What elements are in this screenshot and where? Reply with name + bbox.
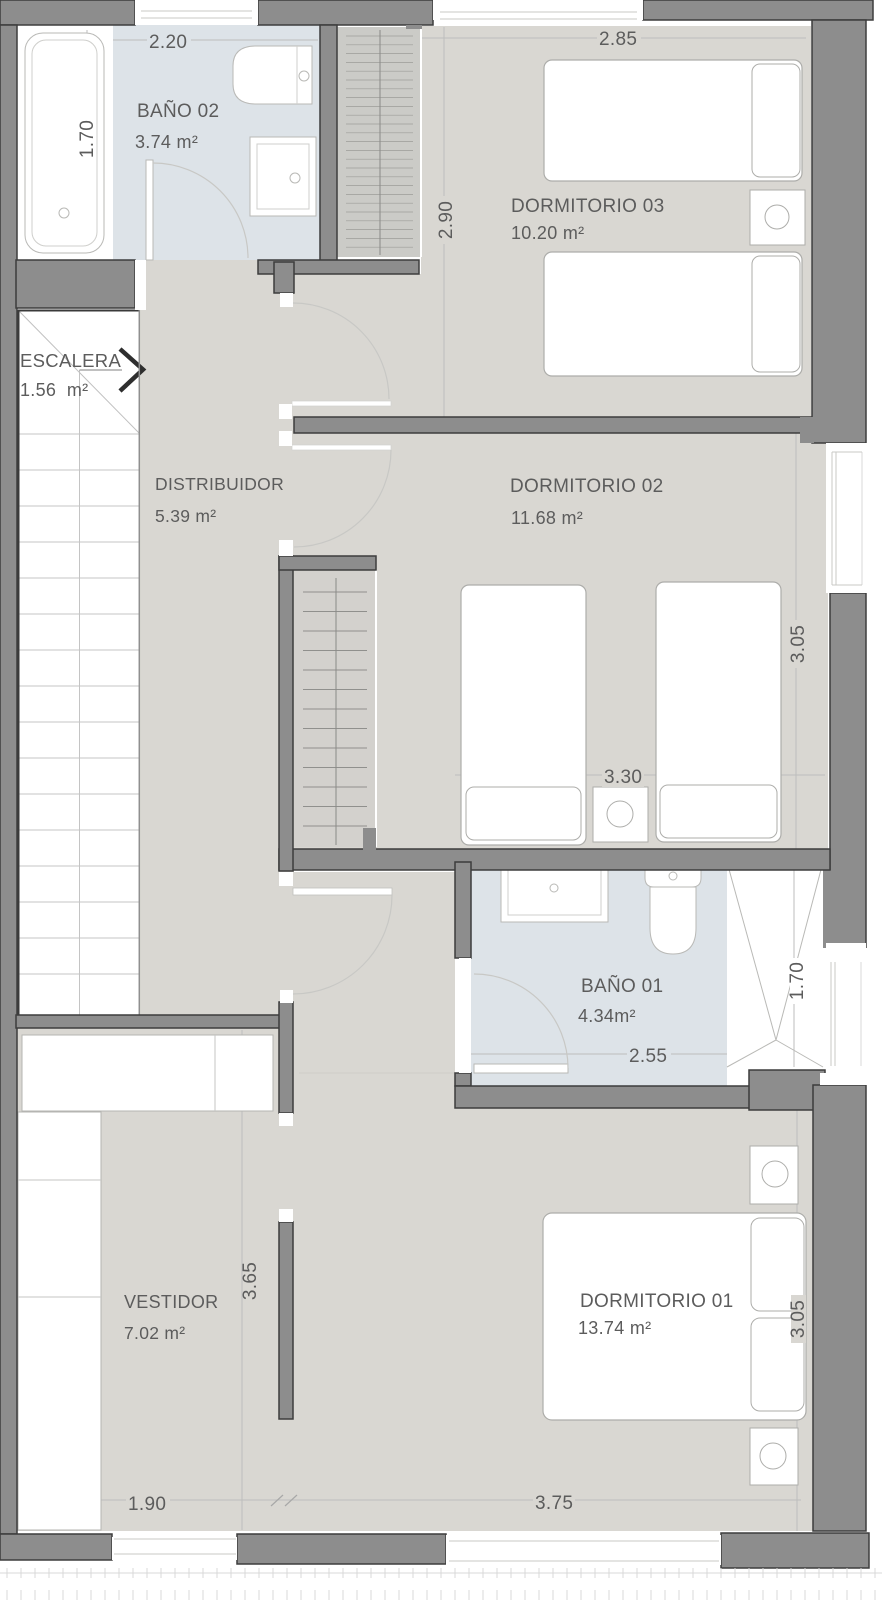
svg-text:1.90: 1.90 — [128, 1494, 166, 1515]
svg-text:3.05: 3.05 — [788, 1300, 809, 1338]
svg-text:1.70: 1.70 — [77, 120, 98, 158]
svg-text:DORMITORIO 02: DORMITORIO 02 — [510, 476, 663, 497]
svg-text:1.70: 1.70 — [787, 962, 808, 1000]
svg-text:10.20 m²: 10.20 m² — [511, 223, 584, 243]
svg-text:VESTIDOR: VESTIDOR — [124, 1292, 218, 1312]
svg-text:2.90: 2.90 — [436, 201, 457, 239]
svg-text:DORMITORIO 03: DORMITORIO 03 — [511, 196, 664, 217]
svg-text:2.55: 2.55 — [629, 1046, 667, 1067]
svg-text:3.65: 3.65 — [240, 1262, 261, 1300]
svg-text:DISTRIBUIDOR: DISTRIBUIDOR — [155, 474, 284, 494]
svg-text:1.56 m²: 1.56 m² — [20, 380, 88, 400]
svg-text:3.74 m²: 3.74 m² — [135, 132, 198, 152]
svg-text:BAÑO 01: BAÑO 01 — [581, 975, 663, 997]
svg-text:13.74 m²: 13.74 m² — [578, 1318, 651, 1338]
svg-text:3.05: 3.05 — [788, 625, 809, 663]
svg-text:2.20: 2.20 — [149, 32, 187, 53]
svg-text:ESCALERA: ESCALERA — [20, 350, 121, 371]
svg-text:3.75: 3.75 — [535, 1493, 573, 1514]
svg-text:BAÑO 02: BAÑO 02 — [137, 100, 219, 122]
svg-text:DORMITORIO 01: DORMITORIO 01 — [580, 1291, 733, 1312]
svg-text:3.30: 3.30 — [604, 767, 642, 788]
svg-text:7.02 m²: 7.02 m² — [124, 1323, 185, 1343]
svg-text:4.34m²: 4.34m² — [578, 1006, 636, 1026]
svg-text:2.85: 2.85 — [599, 29, 637, 50]
svg-text:11.68 m²: 11.68 m² — [511, 508, 583, 528]
svg-text:5.39 m²: 5.39 m² — [155, 506, 216, 526]
